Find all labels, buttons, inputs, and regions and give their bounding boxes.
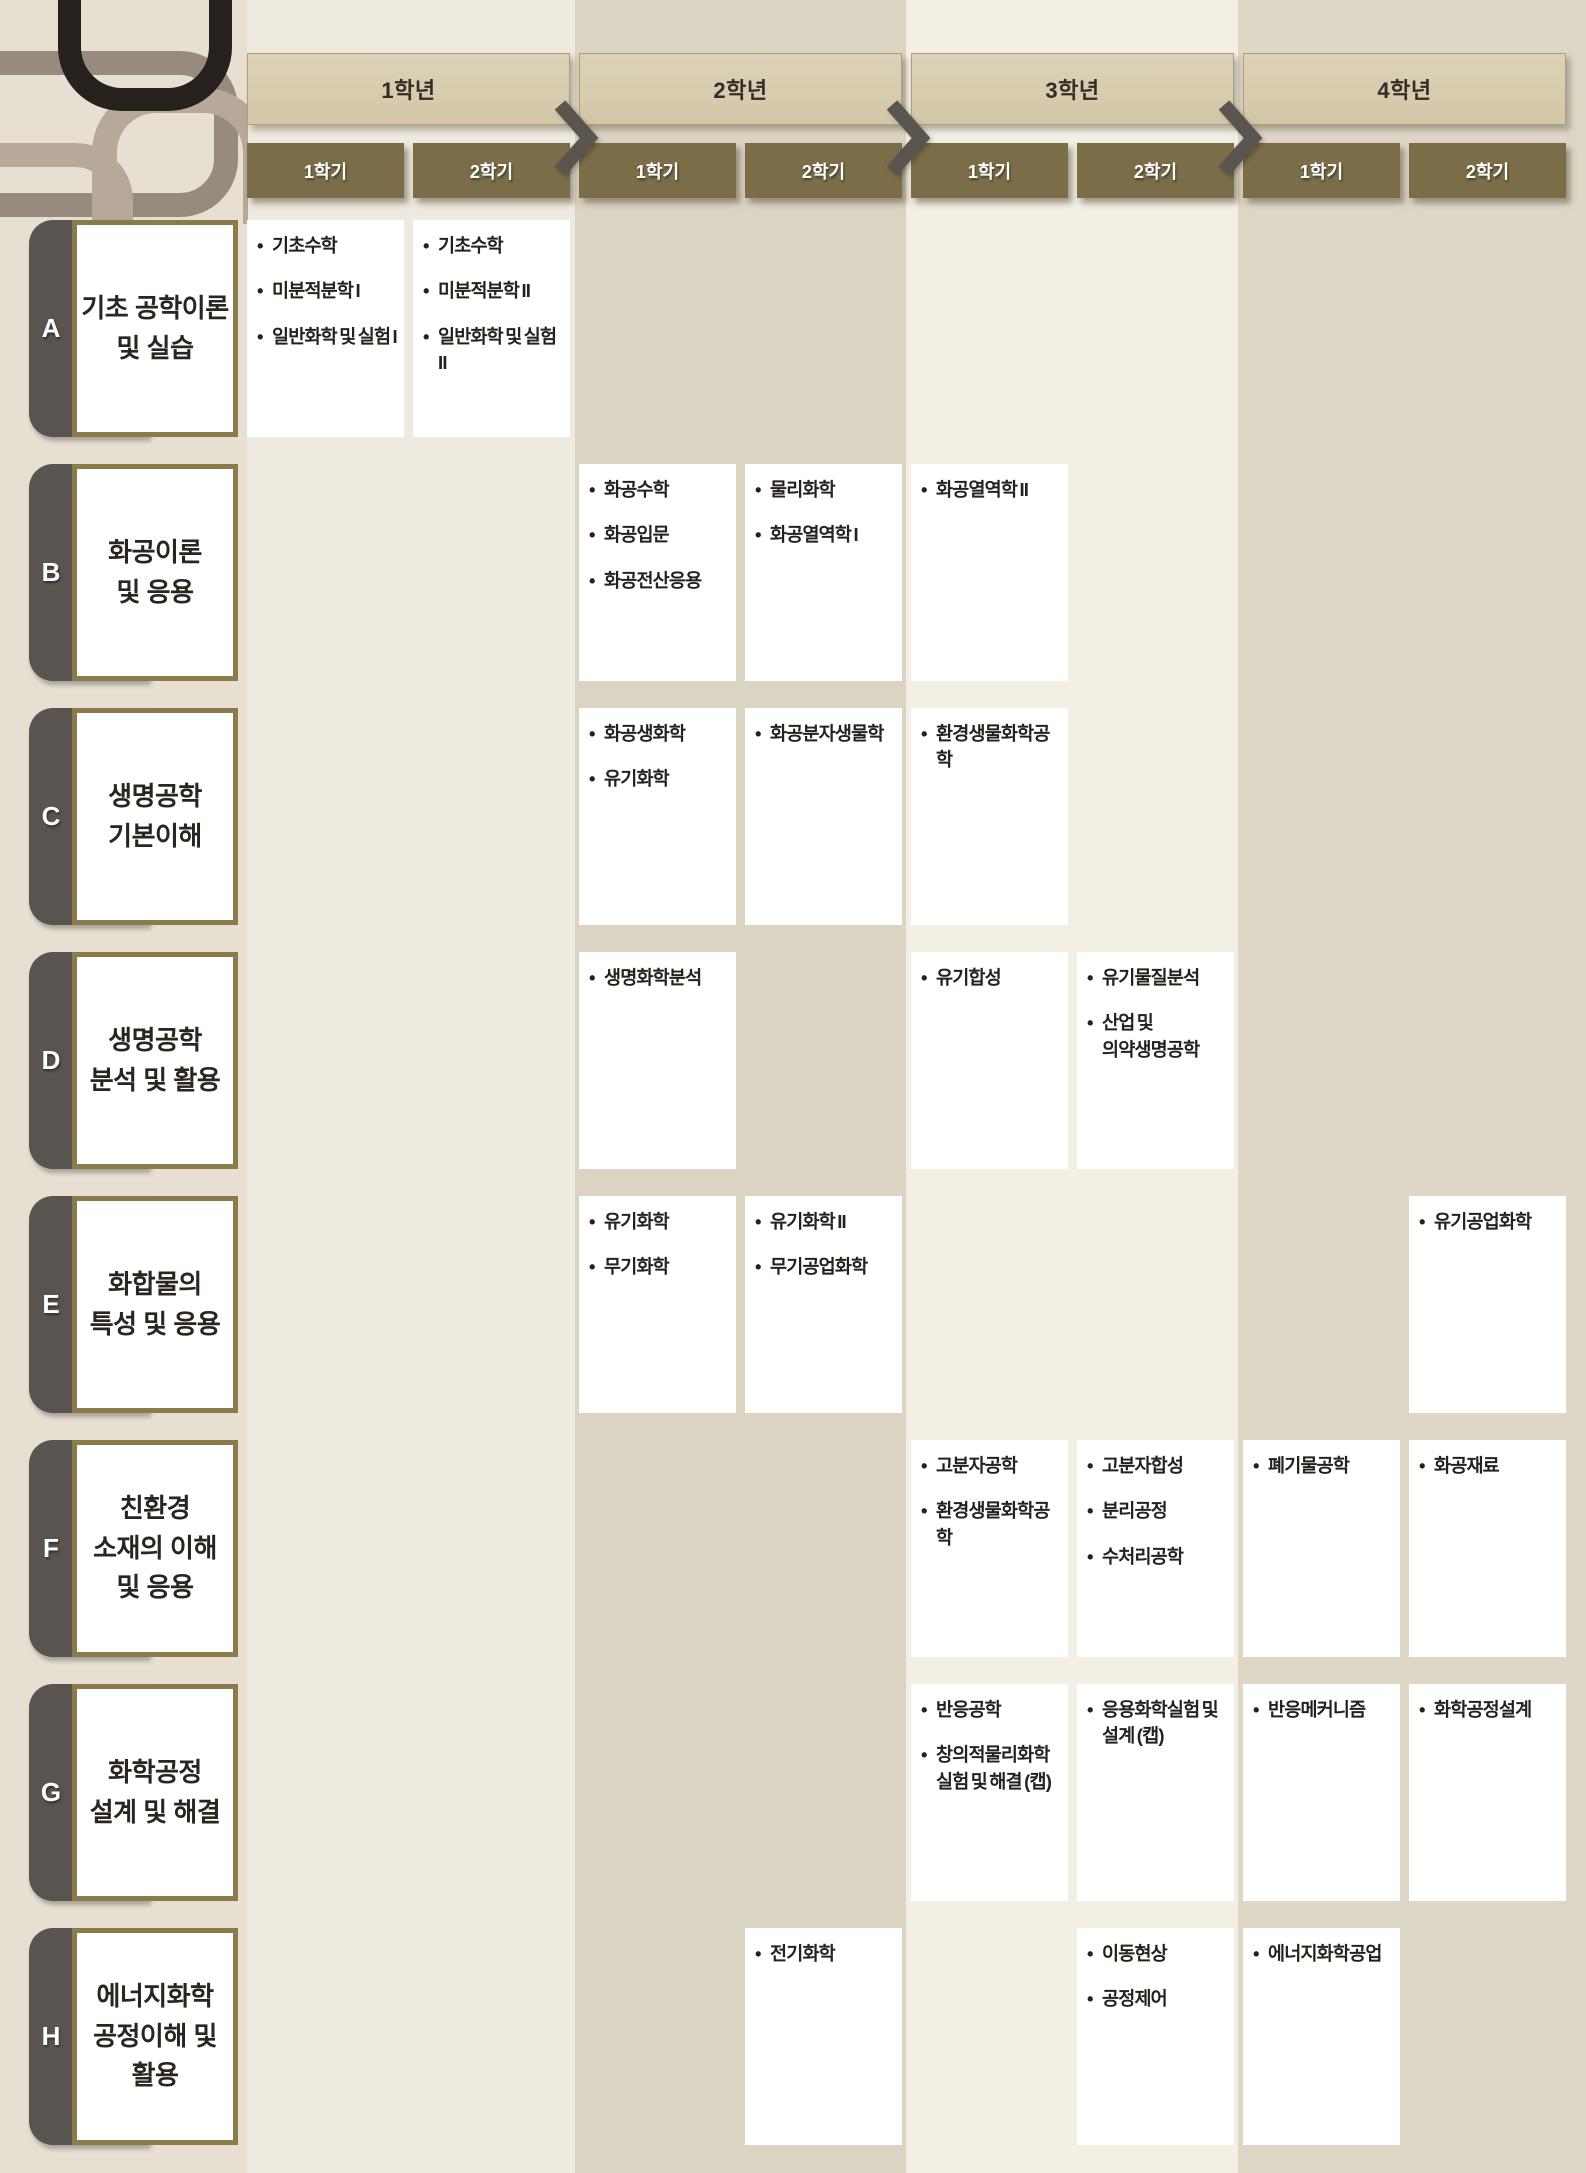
course-item: 화공재료 [1419, 1453, 1562, 1479]
course-cell-A-1-2: 기초수학미분적분학 II일반화학 및 실험 II [413, 220, 570, 437]
course-cell-D-2-1: 생명화학분석 [579, 952, 736, 1169]
course-cell-B-3-1: 화공열역학 II [911, 464, 1068, 681]
course-list: 물리화학화공열역학 I [755, 477, 898, 549]
category-title-A: 기초 공학이론및 실습 [72, 220, 238, 437]
course-item: 유기화학 II [755, 1209, 898, 1235]
course-item: 일반화학 및 실험 II [423, 324, 566, 377]
course-item: 미분적분학 I [257, 278, 400, 304]
course-item: 공정제어 [1087, 1986, 1230, 2012]
course-item: 산업 및 의약생명공학 [1087, 1010, 1230, 1063]
category-title-line: 생명공학 [108, 1021, 202, 1061]
course-item: 고분자공학 [921, 1453, 1064, 1479]
course-cell-H-3-2: 이동현상공정제어 [1077, 1928, 1234, 2145]
course-item: 화공열역학 II [921, 477, 1064, 503]
curriculum-roadmap: 1학년1학기2학기2학년1학기2학기3학년1학기2학기4학년1학기2학기 A기초… [0, 0, 1586, 2173]
course-item: 전기화학 [755, 1941, 898, 1967]
semester-header-2-1: 1학기 [579, 143, 736, 198]
course-cell-E-4-2: 유기공업화학 [1409, 1196, 1566, 1413]
course-cell-C-3-1: 환경생물화학공학 [911, 708, 1068, 925]
course-item: 고분자합성 [1087, 1453, 1230, 1479]
course-list: 유기물질분석산업 및 의약생명공학 [1087, 965, 1230, 1063]
year-header-3: 3학년 [911, 53, 1234, 125]
course-item: 유기물질분석 [1087, 965, 1230, 991]
category-title-B: 화공이론및 응용 [72, 464, 238, 681]
course-list: 고분자합성분리공정수처리공학 [1087, 1453, 1230, 1570]
course-item: 수처리공학 [1087, 1544, 1230, 1570]
course-item: 폐기물공학 [1253, 1453, 1396, 1479]
semester-header-1-1: 1학기 [247, 143, 404, 198]
course-item: 화학공정설계 [1419, 1697, 1562, 1723]
chevron-right-icon [552, 98, 598, 178]
course-cell-G-4-2: 화학공정설계 [1409, 1684, 1566, 1901]
course-cell-B-2-2: 물리화학화공열역학 I [745, 464, 902, 681]
category-title-H: 에너지화학공정이해 및활용 [72, 1928, 238, 2145]
course-item: 환경생물화학공학 [921, 1498, 1064, 1551]
course-cell-H-2-2: 전기화학 [745, 1928, 902, 2145]
course-cell-D-3-1: 유기합성 [911, 952, 1068, 1169]
course-list: 전기화학 [755, 1941, 898, 1967]
category-title-line: 기본이해 [108, 817, 202, 857]
course-list: 유기공업화학 [1419, 1209, 1562, 1235]
semester-header-1-2: 2학기 [413, 143, 570, 198]
category-title-G: 화학공정설계 및 해결 [72, 1684, 238, 1901]
category-letter-B: B [29, 464, 73, 681]
course-cell-H-4-1: 에너지화학공업 [1243, 1928, 1400, 2145]
semester-header-4-2: 2학기 [1409, 143, 1566, 198]
category-title-D: 생명공학분석 및 활용 [72, 952, 238, 1169]
category-title-line: 및 응용 [117, 573, 194, 613]
course-item: 기초수학 [257, 233, 400, 259]
course-item: 유기화학 [589, 766, 732, 792]
course-list: 화공수학화공입문화공전산응용 [589, 477, 732, 594]
category-title-line: 활용 [132, 2056, 179, 2096]
course-list: 이동현상공정제어 [1087, 1941, 1230, 2013]
category-letter-F: F [29, 1440, 73, 1657]
course-item: 생명화학분석 [589, 965, 732, 991]
category-letter-E: E [29, 1196, 73, 1413]
course-cell-F-3-2: 고분자합성분리공정수처리공학 [1077, 1440, 1234, 1657]
course-item: 무기화학 [589, 1254, 732, 1280]
chevron-right-icon [884, 98, 930, 178]
course-cell-E-2-2: 유기화학 II무기공업화학 [745, 1196, 902, 1413]
category-title-line: 공정이해 및 [93, 2017, 217, 2057]
category-letter-C: C [29, 708, 73, 925]
category-title-F: 친환경소재의 이해및 응용 [72, 1440, 238, 1657]
category-title-line: 친환경 [120, 1489, 190, 1529]
course-item: 에너지화학공업 [1253, 1941, 1396, 1967]
category-title-line: 화공이론 [108, 533, 202, 573]
chevron-right-icon [1216, 98, 1262, 178]
course-item: 반응메커니즘 [1253, 1697, 1396, 1723]
category-letter-A: A [29, 220, 73, 437]
year-header-2: 2학년 [579, 53, 902, 125]
category-title-line: 설계 및 해결 [90, 1793, 221, 1833]
course-list: 화공재료 [1419, 1453, 1562, 1479]
semester-header-4-1: 1학기 [1243, 143, 1400, 198]
course-list: 기초수학미분적분학 II일반화학 및 실험 II [423, 233, 566, 376]
category-title-line: 화학공정 [108, 1753, 202, 1793]
course-item: 화공전산응용 [589, 568, 732, 594]
course-list: 화공생화학유기화학 [589, 721, 732, 793]
course-list: 유기화학무기화학 [589, 1209, 732, 1281]
course-item: 환경생물화학공학 [921, 721, 1064, 774]
course-item: 유기화학 [589, 1209, 732, 1235]
course-item: 창의적물리화학실험 및 해결 (캡) [921, 1742, 1064, 1795]
course-list: 화공분자생물학 [755, 721, 898, 747]
course-item: 분리공정 [1087, 1498, 1230, 1524]
course-item: 유기합성 [921, 965, 1064, 991]
course-cell-E-2-1: 유기화학무기화학 [579, 1196, 736, 1413]
course-list: 화학공정설계 [1419, 1697, 1562, 1723]
course-cell-G-3-1: 반응공학창의적물리화학실험 및 해결 (캡) [911, 1684, 1068, 1901]
category-title-line: 특성 및 응용 [90, 1305, 221, 1345]
category-title-C: 생명공학기본이해 [72, 708, 238, 925]
course-item: 응용화학실험 및 설계 (캡) [1087, 1697, 1230, 1750]
category-letter-D: D [29, 952, 73, 1169]
course-item: 화공수학 [589, 477, 732, 503]
course-list: 폐기물공학 [1253, 1453, 1396, 1479]
category-title-line: 기초 공학이론 [81, 289, 228, 329]
category-title-line: 및 응용 [117, 1568, 194, 1608]
course-cell-A-1-1: 기초수학미분적분학 I일반화학 및 실험 I [247, 220, 404, 437]
category-title-line: 소재의 이해 [93, 1529, 217, 1569]
course-list: 반응공학창의적물리화학실험 및 해결 (캡) [921, 1697, 1064, 1795]
course-cell-C-2-1: 화공생화학유기화학 [579, 708, 736, 925]
course-item: 화공분자생물학 [755, 721, 898, 747]
course-list: 반응메커니즘 [1253, 1697, 1396, 1723]
course-item: 무기공업화학 [755, 1254, 898, 1280]
course-item: 이동현상 [1087, 1941, 1230, 1967]
course-cell-G-4-1: 반응메커니즘 [1243, 1684, 1400, 1901]
course-item: 일반화학 및 실험 I [257, 324, 400, 350]
course-list: 응용화학실험 및 설계 (캡) [1087, 1697, 1230, 1750]
course-list: 고분자공학환경생물화학공학 [921, 1453, 1064, 1551]
course-item: 유기공업화학 [1419, 1209, 1562, 1235]
course-cell-G-3-2: 응용화학실험 및 설계 (캡) [1077, 1684, 1234, 1901]
category-title-line: 화합물의 [108, 1265, 202, 1305]
category-letter-H: H [29, 1928, 73, 2145]
course-list: 생명화학분석 [589, 965, 732, 991]
course-item: 화공입문 [589, 522, 732, 548]
course-cell-F-3-1: 고분자공학환경생물화학공학 [911, 1440, 1068, 1657]
year-header-1: 1학년 [247, 53, 570, 125]
course-cell-C-2-2: 화공분자생물학 [745, 708, 902, 925]
course-cell-D-3-2: 유기물질분석산업 및 의약생명공학 [1077, 952, 1234, 1169]
course-cell-B-2-1: 화공수학화공입문화공전산응용 [579, 464, 736, 681]
category-title-line: 및 실습 [117, 329, 194, 369]
year-header-4: 4학년 [1243, 53, 1566, 125]
category-title-E: 화합물의특성 및 응용 [72, 1196, 238, 1413]
decorative-tubes-graphic [0, 0, 248, 224]
course-list: 유기합성 [921, 965, 1064, 991]
category-letter-G: G [29, 1684, 73, 1901]
semester-header-2-2: 2학기 [745, 143, 902, 198]
semester-header-3-2: 2학기 [1077, 143, 1234, 198]
course-item: 기초수학 [423, 233, 566, 259]
category-title-line: 분석 및 활용 [90, 1061, 221, 1101]
course-cell-F-4-2: 화공재료 [1409, 1440, 1566, 1657]
course-item: 물리화학 [755, 477, 898, 503]
course-item: 화공열역학 I [755, 522, 898, 548]
category-title-line: 에너지화학 [96, 1977, 213, 2017]
course-item: 화공생화학 [589, 721, 732, 747]
course-cell-F-4-1: 폐기물공학 [1243, 1440, 1400, 1657]
semester-header-3-1: 1학기 [911, 143, 1068, 198]
course-list: 화공열역학 II [921, 477, 1064, 503]
course-list: 유기화학 II무기공업화학 [755, 1209, 898, 1281]
decor-loop-black [58, 0, 232, 111]
course-list: 에너지화학공업 [1253, 1941, 1396, 1967]
course-list: 기초수학미분적분학 I일반화학 및 실험 I [257, 233, 400, 350]
course-item: 반응공학 [921, 1697, 1064, 1723]
course-list: 환경생물화학공학 [921, 721, 1064, 774]
course-item: 미분적분학 II [423, 278, 566, 304]
category-title-line: 생명공학 [108, 777, 202, 817]
